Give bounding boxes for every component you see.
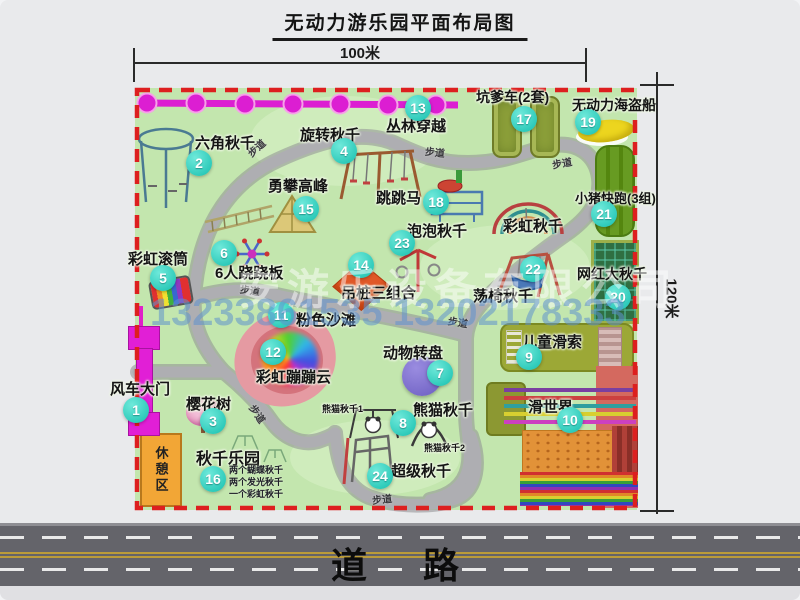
label-animal-carousel: 动物转盘 — [383, 342, 443, 363]
label-panda-swing-1: 熊猫秋千1 — [322, 402, 363, 415]
label-climbing-peak: 勇攀高峰 — [268, 175, 328, 196]
marker-hanging-post-combo: 14 — [348, 252, 374, 278]
marker-windmill-gate: 1 — [123, 397, 149, 423]
dimension-height-label: 120米 — [662, 269, 683, 329]
label-rainbow-bounce-cloud: 彩虹蹦蹦云 — [256, 366, 331, 387]
walkway-label: 步道 — [424, 143, 445, 160]
marker-super-swing: 24 — [367, 463, 393, 489]
marker-pit-cars: 17 — [511, 106, 537, 132]
marker-cherry-tree: 3 — [200, 408, 226, 434]
dimension-width-label: 100米 — [340, 42, 380, 63]
page-title: 无动力游乐园平面布局图 — [272, 8, 527, 41]
marker-animal-carousel: 7 — [427, 360, 453, 386]
marker-pink-beach: 11 — [268, 302, 294, 328]
label-hanging-post-combo: 吊桩三组合 — [341, 282, 416, 303]
walkway-label: 步道 — [239, 281, 261, 299]
marker-slide-world: 10 — [557, 407, 583, 433]
marker-hexagon-swing: 2 — [186, 150, 212, 176]
dimension-height-line — [656, 72, 658, 514]
marker-jumping-horse: 18 — [423, 189, 449, 215]
dimension-height-tick-bottom — [640, 510, 674, 512]
marker-piggy-run: 21 — [591, 201, 617, 227]
marker-seesaw: 6 — [211, 240, 237, 266]
road: 道 路 — [0, 523, 800, 589]
swing-park-detail: 两个发光秋千 — [229, 477, 283, 488]
rest-area: 休憩区 — [140, 433, 182, 507]
label-panda-swing-2: 熊猫秋千2 — [424, 441, 465, 454]
road-label: 道 路 — [331, 537, 469, 589]
label-jumping-horse: 跳跳马 — [376, 187, 421, 208]
marker-rotating-swing: 4 — [331, 138, 357, 164]
dimension-height-tick-top — [640, 84, 674, 86]
windmill-gate-icon — [139, 306, 143, 326]
label-pink-beach: 粉色沙滩 — [296, 309, 356, 330]
label-windmill-gate: 风车大门 — [110, 378, 170, 399]
walkway-label: 步道 — [371, 490, 392, 507]
swing-park-detail: 两个蝴蝶秋千 — [229, 465, 283, 476]
label-pit-cars: 坑爹车(2套) — [476, 87, 549, 107]
label-net-swing: 网红大秋千 — [577, 264, 647, 284]
label-piggy-run: 小猪快跑(3组) — [575, 188, 656, 207]
marker-swing-chair: 22 — [520, 256, 546, 282]
marker-bubble-swing: 23 — [389, 230, 415, 256]
swing-park-detail: 一个彩虹秋千 — [229, 489, 283, 500]
marker-pirate-ship: 19 — [575, 109, 601, 135]
marker-kids-zipline: 9 — [516, 344, 542, 370]
walkway-label: 步道 — [447, 312, 469, 330]
label-bubble-swing: 泡泡秋千 — [407, 220, 467, 241]
marker-swing-park: 16 — [200, 466, 226, 492]
windmill-gate-icon — [128, 326, 160, 350]
marker-panda-swing: 8 — [390, 410, 416, 436]
marker-rainbow-roller: 5 — [150, 265, 176, 291]
slide-tower-icon — [612, 426, 638, 472]
label-rainbow-swing: 彩虹秋千 — [503, 215, 563, 236]
marker-climbing-peak: 15 — [293, 196, 319, 222]
label-panda-swing: 熊猫秋千 — [413, 399, 473, 420]
dimension-width-tick-left — [133, 48, 135, 82]
marker-rainbow-bounce-cloud: 12 — [260, 339, 286, 365]
label-swing-chair: 荡椅秋千 — [473, 285, 533, 306]
slide-sand-icon — [522, 430, 616, 474]
park-layout-map: 无动力游乐园平面布局图 100米 120米 — [0, 0, 800, 600]
rainbow-slide-icon — [520, 472, 638, 506]
kids-zipline-ladder-icon — [598, 327, 622, 367]
dimension-width-line — [134, 62, 586, 64]
marker-jungle-crossing: 13 — [405, 95, 431, 121]
road-shoulder — [0, 586, 800, 600]
label-hexagon-swing: 六角秋千 — [195, 132, 255, 153]
marker-net-swing: 20 — [605, 284, 631, 310]
dimension-width-tick-right — [585, 48, 587, 82]
label-super-swing: 超级秋千 — [391, 460, 451, 481]
